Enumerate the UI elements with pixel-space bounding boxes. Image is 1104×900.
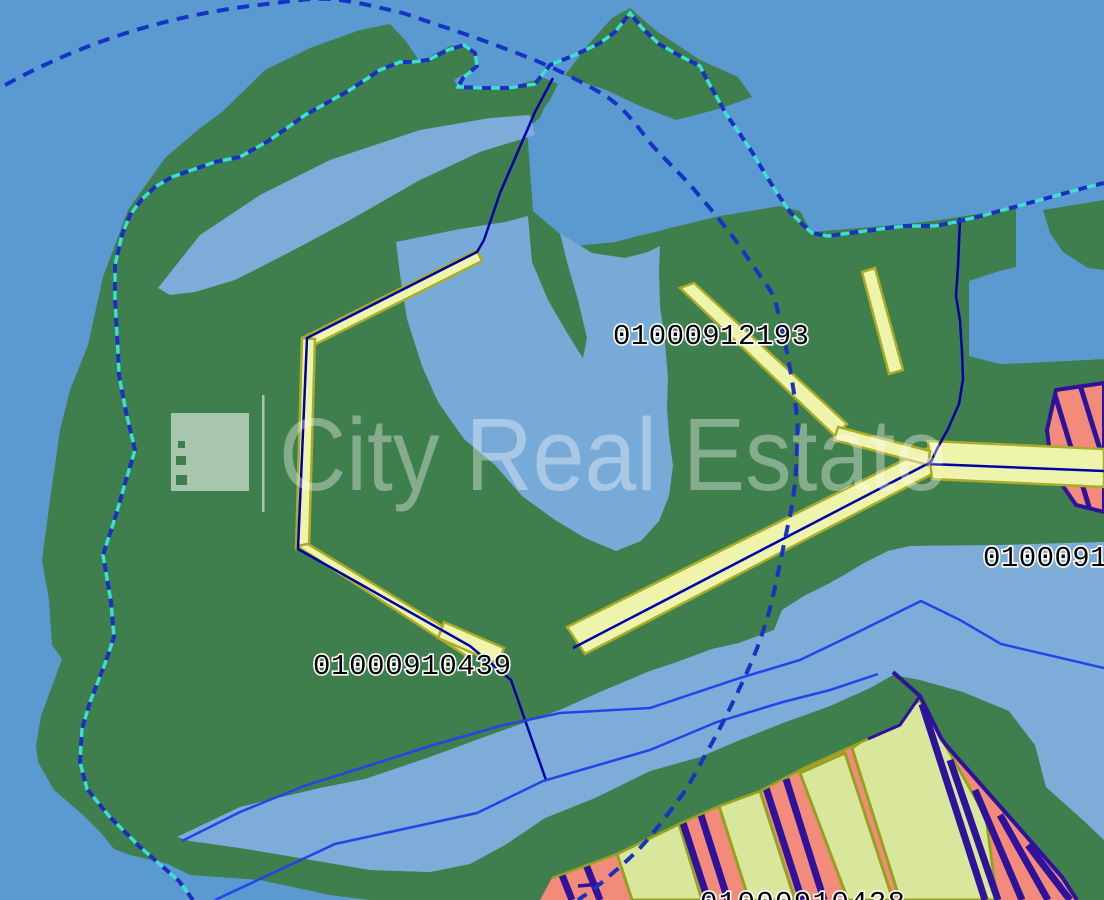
svg-text:01000910438: 01000910438 [700, 887, 905, 900]
svg-text:City Real Estate: City Real Estate [279, 397, 947, 512]
svg-text:01000912193: 01000912193 [613, 320, 809, 353]
svg-text:01000912406: 01000912406 [983, 542, 1104, 575]
svg-text:01000910439: 01000910439 [313, 650, 511, 683]
